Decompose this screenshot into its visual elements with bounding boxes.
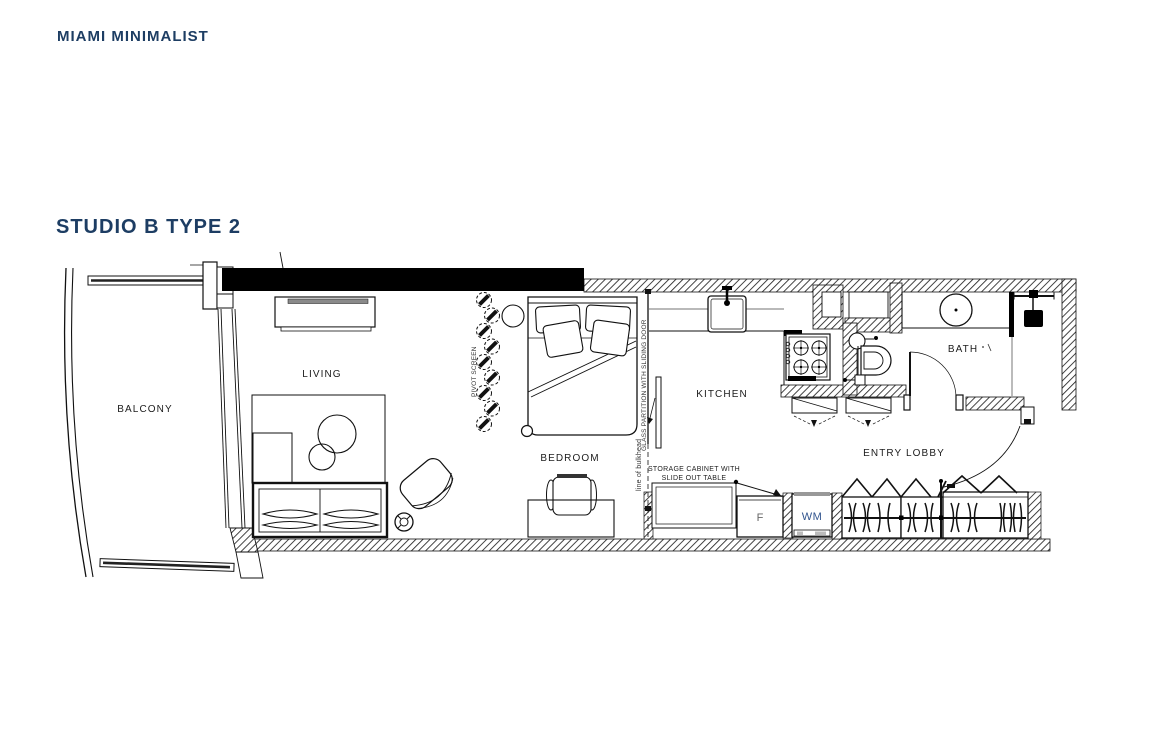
bedside-table — [502, 305, 524, 327]
entry-door-hinge — [1024, 419, 1031, 424]
pillow — [542, 320, 583, 358]
divider-wall — [832, 493, 842, 539]
column — [203, 262, 217, 309]
annotation-glass-partition: GLASS PARTITION WITH SLIDING DOOR — [641, 319, 648, 451]
kitchen-sink — [708, 286, 746, 332]
shower-divider — [1009, 292, 1014, 337]
room-label-entry: ENTRY LOBBY — [863, 448, 945, 459]
floor-plan-drawing: BALCONY LIVING BEDROOM KITCHEN BATH ENTR… — [0, 0, 1166, 743]
annotation-storage-1: STORAGE CABINET WITH — [648, 466, 740, 473]
bulkhead-wall — [222, 268, 584, 291]
room-label-bedroom: BEDROOM — [540, 453, 599, 464]
desk-chair — [547, 474, 597, 515]
bottom-wall — [248, 539, 1050, 551]
tick-mark — [280, 252, 283, 268]
wc-right-wall — [890, 283, 902, 333]
balcony-bottom-rail — [100, 559, 234, 572]
shaft-duct — [849, 292, 888, 318]
room-label-kitchen: KITCHEN — [696, 389, 748, 400]
room-label-living: LIVING — [302, 369, 341, 380]
armchair — [396, 454, 460, 517]
bed — [522, 297, 638, 437]
fridge-label: F — [757, 512, 764, 524]
side-pouf — [309, 444, 335, 470]
sliding-door — [647, 377, 661, 448]
coffee-table — [318, 415, 356, 453]
bedroom — [502, 297, 637, 537]
annotation-bulkhead: line of bulkhead — [636, 439, 643, 491]
balcony-rail-curve — [65, 268, 86, 577]
tick-mark — [982, 346, 984, 348]
shower-head — [1024, 310, 1043, 327]
tv-console — [275, 297, 375, 331]
page: MIAMI MINIMALIST STUDIO B TYPE 2 — [0, 0, 1166, 743]
annotation-pivot-screen: PIVOT SCREEN — [471, 346, 478, 397]
balcony — [65, 262, 263, 578]
balcony-glass-wall — [218, 309, 245, 528]
pillow — [590, 320, 630, 357]
right-wall — [1062, 279, 1076, 410]
bath-vanity — [902, 292, 1010, 328]
tick-mark — [988, 344, 991, 351]
wc-toilet — [858, 346, 891, 375]
divider-wall — [1028, 492, 1041, 539]
annotation-storage-2: SLIDE OUT TABLE — [662, 475, 727, 482]
living-room — [252, 297, 460, 537]
pivot-screen — [477, 293, 500, 432]
wardrobe — [842, 476, 1028, 538]
floor-lamp — [395, 513, 413, 531]
sofa — [253, 483, 387, 537]
cooktop — [784, 330, 830, 381]
bath-bottom-wall — [966, 397, 1024, 410]
storage-cabinet — [652, 483, 736, 528]
balcony-rail-curve — [72, 268, 93, 577]
bath-door — [910, 352, 956, 396]
shower — [1012, 290, 1054, 396]
door-jamb — [904, 395, 910, 410]
room-label-balcony: BALCONY — [117, 404, 173, 415]
shaft-duct — [822, 292, 841, 317]
door-jamb — [956, 395, 963, 410]
room-label-bath: BATH — [948, 344, 978, 355]
overhead-cabinets — [792, 398, 891, 427]
column — [217, 294, 233, 308]
bath — [902, 290, 1054, 396]
fridge — [734, 480, 783, 537]
washer-label: WM — [802, 511, 823, 523]
